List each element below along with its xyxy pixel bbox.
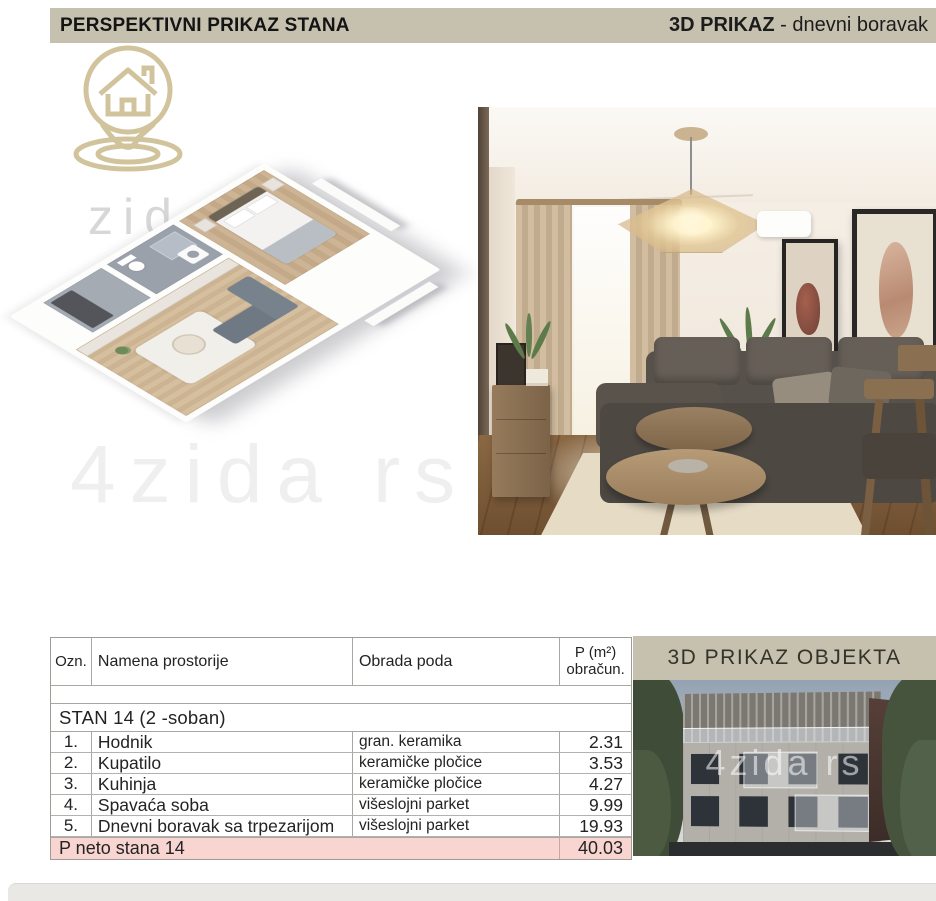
balcony-glass <box>795 794 870 831</box>
table-decor <box>668 459 708 473</box>
col-header-p-line1: P (m²) <box>575 645 616 662</box>
row-ozn: 3. <box>51 774 91 794</box>
air-conditioner <box>757 211 811 237</box>
table-row: 3. Kuhinja keramičke pločice 4.27 <box>51 774 631 795</box>
wardrobe <box>50 290 114 328</box>
dining-chair <box>862 369 936 535</box>
building-section-title: 3D PRIKAZ OBJEKTA <box>633 636 936 680</box>
row-p: 2.31 <box>559 732 631 752</box>
table-row: 4. Spavaća soba višeslojni parket 9.99 <box>51 795 631 816</box>
total-label: P neto stana 14 <box>51 838 559 859</box>
table-row: 5. Dnevni boravak sa trpezarijom višeslo… <box>51 816 631 837</box>
living-room-photo <box>478 107 936 535</box>
floorplan-room-bedroom <box>179 170 370 285</box>
building-ground-floor <box>669 842 901 856</box>
blanket <box>262 219 337 264</box>
bed <box>207 186 337 264</box>
table-group-title: STAN 14 (2 -soban) <box>51 703 631 732</box>
ceiling <box>478 107 936 203</box>
row-namena: Kupatilo <box>91 753 352 773</box>
table-row: 1. Hodnik gran. keramika 2.31 <box>51 732 631 753</box>
table-header-row: Ozn. Namena prostorije Obrada poda P (m²… <box>51 638 631 686</box>
row-obrada: keramičke pločice <box>352 774 559 794</box>
dining-table-corner <box>898 345 936 371</box>
table-total-row: P neto stana 14 40.03 <box>51 837 631 859</box>
floorplan-apartment <box>9 163 440 423</box>
art-abstract-shape <box>879 242 913 338</box>
row-ozn: 4. <box>51 795 91 815</box>
sideboard <box>492 385 550 497</box>
lamp-cord <box>690 137 692 195</box>
bottom-bar <box>8 883 936 901</box>
row-p: 3.53 <box>559 753 631 773</box>
lamp-glow <box>670 207 712 237</box>
floorplan-3d-view <box>0 118 478 538</box>
page-title: PERSPEKTIVNI PRIKAZ STANA <box>60 15 350 37</box>
building-3d-photo: 4zida rs <box>633 680 936 856</box>
section-title-living-room: 3D PRIKAZ - dnevni boravak <box>669 14 928 37</box>
row-ozn: 5. <box>51 816 91 836</box>
balcony-wall <box>364 282 438 327</box>
glass-railing <box>683 727 881 743</box>
plant <box>113 345 131 356</box>
row-p: 9.99 <box>559 795 631 815</box>
row-obrada: gran. keramika <box>352 732 559 752</box>
row-obrada: višeslojni parket <box>352 795 559 815</box>
sideboard-plant <box>508 313 552 383</box>
table-row: 2. Kupatilo keramičke pločice 3.53 <box>51 753 631 774</box>
section-title-bold: 3D PRIKAZ <box>669 14 775 36</box>
room-area-table: Ozn. Namena prostorije Obrada poda P (m²… <box>50 637 632 860</box>
col-header-namena: Namena prostorije <box>91 638 352 685</box>
total-value: 40.03 <box>559 838 631 859</box>
section-title-rest: - dnevni boravak <box>775 14 928 36</box>
row-p: 19.93 <box>559 816 631 836</box>
row-obrada: keramičke pločice <box>352 753 559 773</box>
col-header-p-line2: obračun. <box>566 662 624 679</box>
watermark-building-text: 4zida rs <box>633 742 936 784</box>
art-abstract-shape <box>796 283 820 335</box>
page-header-bar: PERSPEKTIVNI PRIKAZ STANA 3D PRIKAZ - dn… <box>50 8 936 43</box>
coffee-table-large <box>606 449 766 505</box>
row-namena: Hodnik <box>91 732 352 752</box>
building-top-floor <box>683 692 881 742</box>
row-namena: Kuhinja <box>91 774 352 794</box>
row-namena: Dnevni boravak sa trpezarijom <box>91 816 352 836</box>
row-ozn: 2. <box>51 753 91 773</box>
row-ozn: 1. <box>51 732 91 752</box>
col-header-ozn: Ozn. <box>51 638 91 685</box>
col-header-p: P (m²) obračun. <box>559 638 631 685</box>
row-obrada: višeslojni parket <box>352 816 559 836</box>
row-namena: Spavaća soba <box>91 795 352 815</box>
chair-back <box>864 379 934 399</box>
col-header-obrada: Obrada poda <box>352 638 559 685</box>
chair-seat <box>862 433 936 479</box>
row-p: 4.27 <box>559 774 631 794</box>
coffee-table-small <box>636 407 752 451</box>
table-spacer-row <box>51 686 631 703</box>
